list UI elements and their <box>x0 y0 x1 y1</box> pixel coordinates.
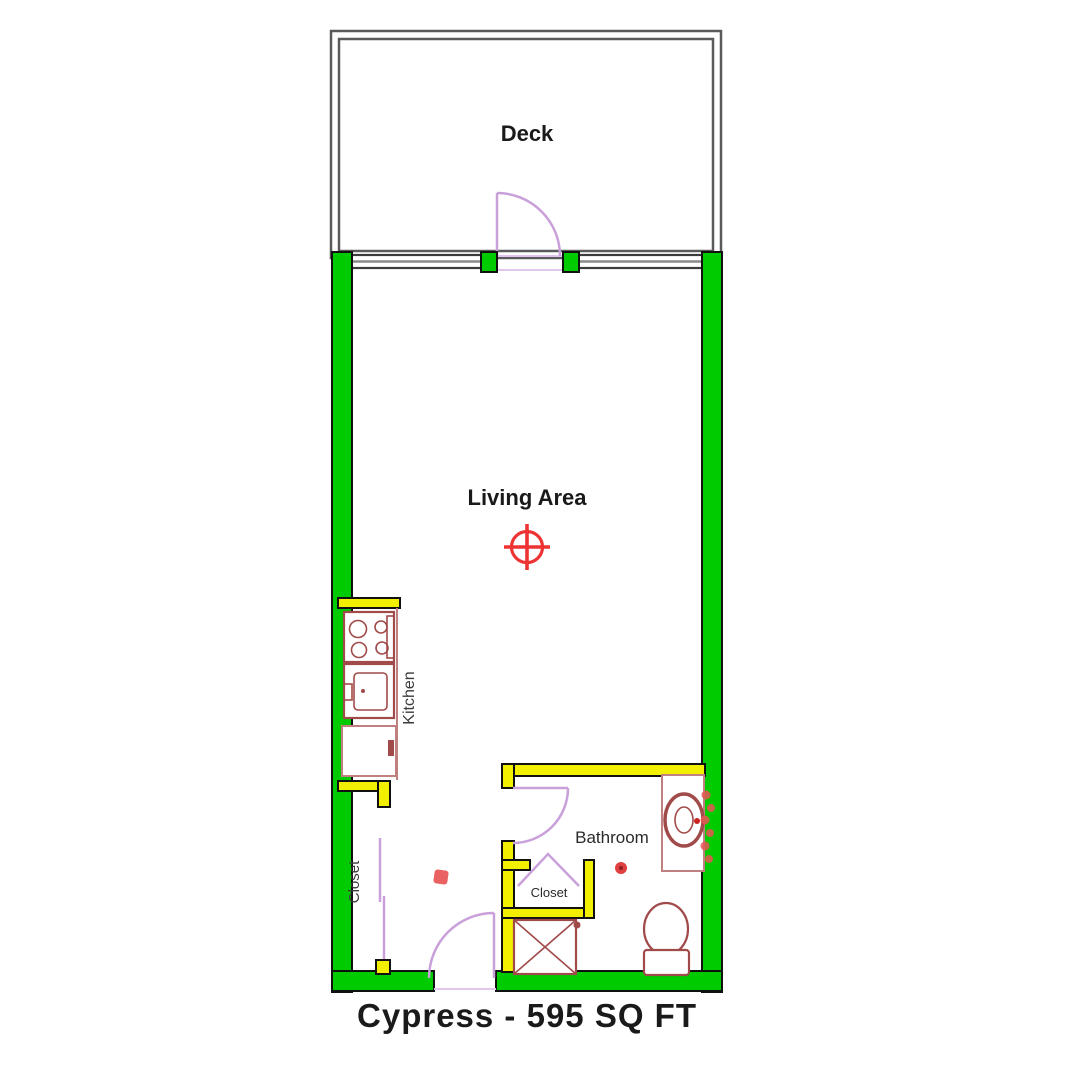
kitchen-sink-icon <box>344 664 394 718</box>
window-left <box>350 255 483 268</box>
bathroom-area: Bathroom Closet <box>502 764 715 975</box>
floorplan-drawing: Deck Living Area <box>0 0 1080 1080</box>
closet-bath-label: Closet <box>531 885 568 900</box>
bathroom-closet: Closet <box>502 854 594 918</box>
bathroom-door <box>513 788 568 843</box>
bathroom-left-wall-upper <box>502 764 514 788</box>
stove-icon <box>344 612 394 662</box>
wall-post-left <box>481 252 497 272</box>
kitchen-counter-top-wall <box>338 598 400 608</box>
deck-label: Deck <box>501 121 554 146</box>
bathroom-door-swing-arc <box>513 788 568 843</box>
ceiling-light-icon <box>504 524 550 570</box>
window-right <box>577 255 704 268</box>
toilet-icon <box>644 903 689 975</box>
deck-door-swing-arc <box>497 193 560 256</box>
top-wall <box>350 193 704 272</box>
wall-right <box>702 252 722 992</box>
smoke-detector-icon <box>433 869 449 885</box>
deck-door <box>497 193 560 256</box>
entry-door <box>429 913 494 978</box>
smoke-detector-icon <box>615 862 627 874</box>
bath-closet-wall-bottom <box>502 908 594 918</box>
plan-title: Cypress - 595 SQ FT <box>357 997 697 1034</box>
kitchen-area: Kitchen <box>338 598 418 807</box>
deck-area: Deck <box>331 31 721 258</box>
bathroom-label: Bathroom <box>575 828 649 847</box>
shower-icon <box>514 920 581 974</box>
bath-closet-wall-stub <box>502 860 530 870</box>
living-area: Living Area <box>433 485 587 885</box>
refrigerator-icon <box>342 726 396 776</box>
bath-closet-wall-right <box>584 860 594 918</box>
closet-wall-stub <box>376 960 390 974</box>
closet-main-label: Closet <box>346 860 363 903</box>
living-area-label: Living Area <box>468 485 588 510</box>
floorplan-canvas: Deck Living Area <box>0 0 1080 1080</box>
kitchen-label: Kitchen <box>401 671 418 724</box>
entry-door-swing-arc <box>429 913 494 978</box>
refrigerator-handle <box>388 740 394 756</box>
wall-post-right <box>563 252 579 272</box>
